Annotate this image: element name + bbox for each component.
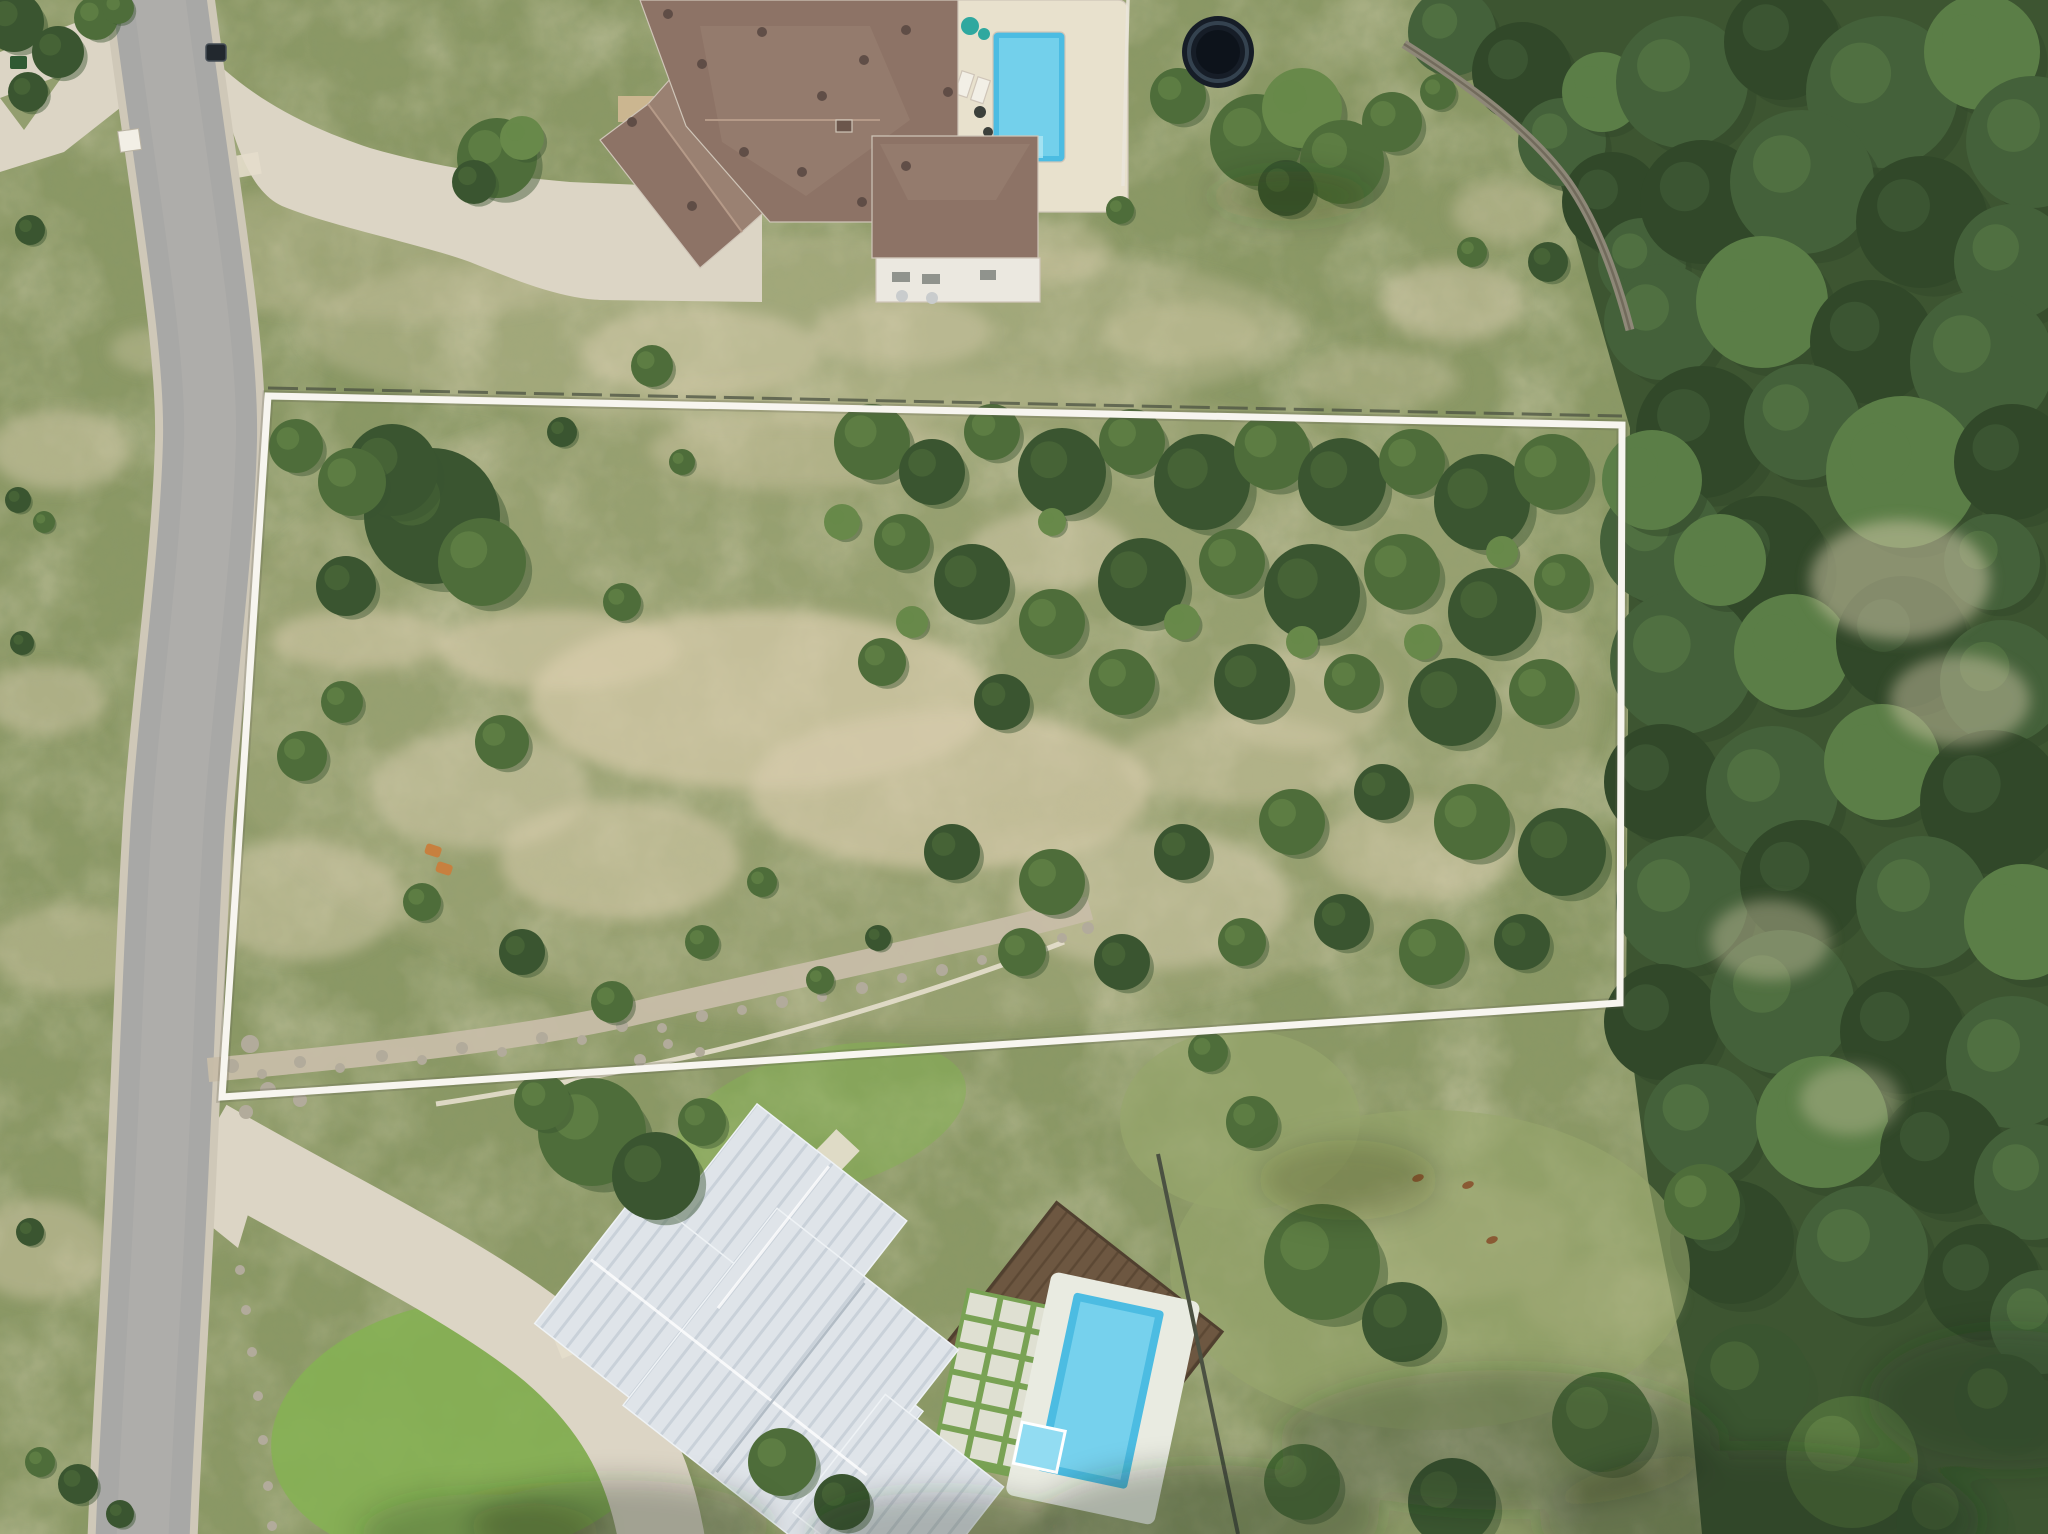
spa bbox=[1013, 1422, 1065, 1472]
window bbox=[922, 274, 940, 284]
window bbox=[892, 272, 910, 282]
ac-unit bbox=[926, 292, 938, 304]
mailbox-pad bbox=[118, 129, 142, 153]
chimney bbox=[836, 120, 852, 132]
patio-table bbox=[974, 106, 986, 118]
trash-bin bbox=[206, 44, 226, 61]
pool-equipment-icon bbox=[961, 17, 979, 35]
utility-box bbox=[10, 56, 27, 69]
aerial-photo-stage bbox=[0, 0, 2048, 1534]
trampoline-icon bbox=[1182, 16, 1254, 88]
street bbox=[142, 0, 210, 1534]
pool-equipment-icon bbox=[978, 28, 990, 40]
ac-unit bbox=[896, 290, 908, 302]
window bbox=[980, 270, 996, 280]
aerial-photo bbox=[0, 0, 2048, 1534]
